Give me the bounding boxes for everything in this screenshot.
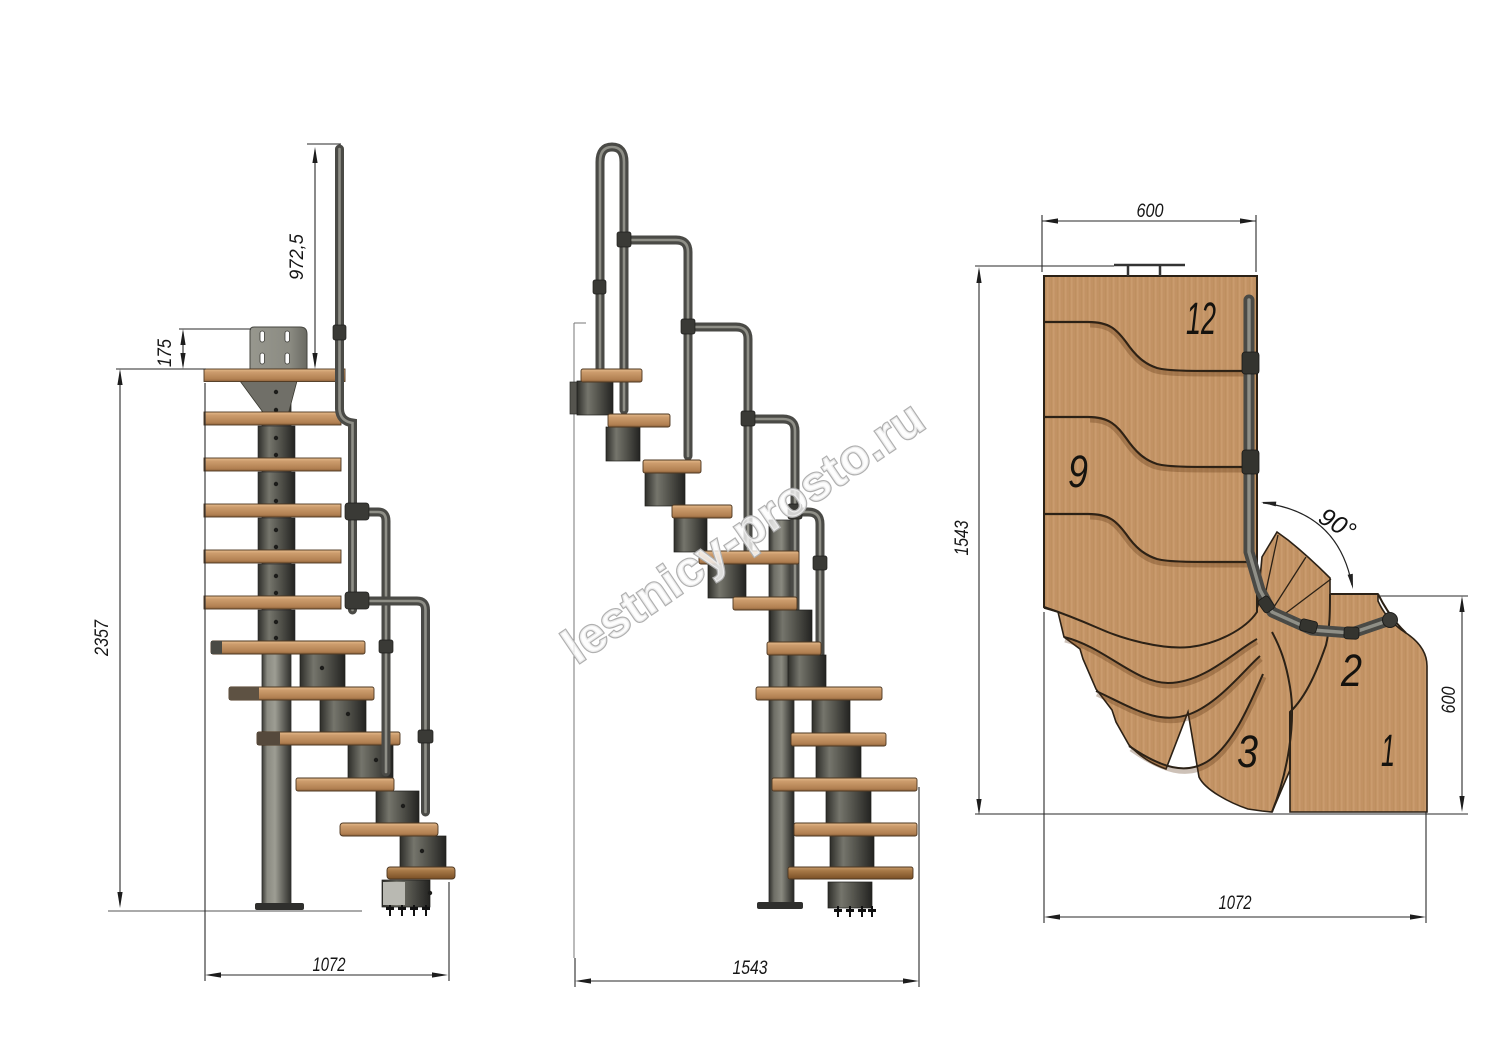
svg-text:12: 12 xyxy=(1186,293,1216,344)
svg-text:1: 1 xyxy=(1381,725,1395,776)
svg-text:9: 9 xyxy=(1068,446,1088,497)
svg-text:1543: 1543 xyxy=(952,520,973,555)
svg-text:600: 600 xyxy=(1137,201,1164,222)
svg-text:972,5: 972,5 xyxy=(287,234,308,280)
svg-text:600: 600 xyxy=(1439,686,1460,713)
svg-text:2: 2 xyxy=(1340,645,1362,696)
svg-text:2357: 2357 xyxy=(92,619,113,657)
svg-text:3: 3 xyxy=(1237,726,1258,777)
svg-text:1072: 1072 xyxy=(1219,893,1252,914)
svg-text:1072: 1072 xyxy=(313,955,346,976)
svg-text:1543: 1543 xyxy=(733,958,768,979)
svg-text:175: 175 xyxy=(155,339,176,367)
